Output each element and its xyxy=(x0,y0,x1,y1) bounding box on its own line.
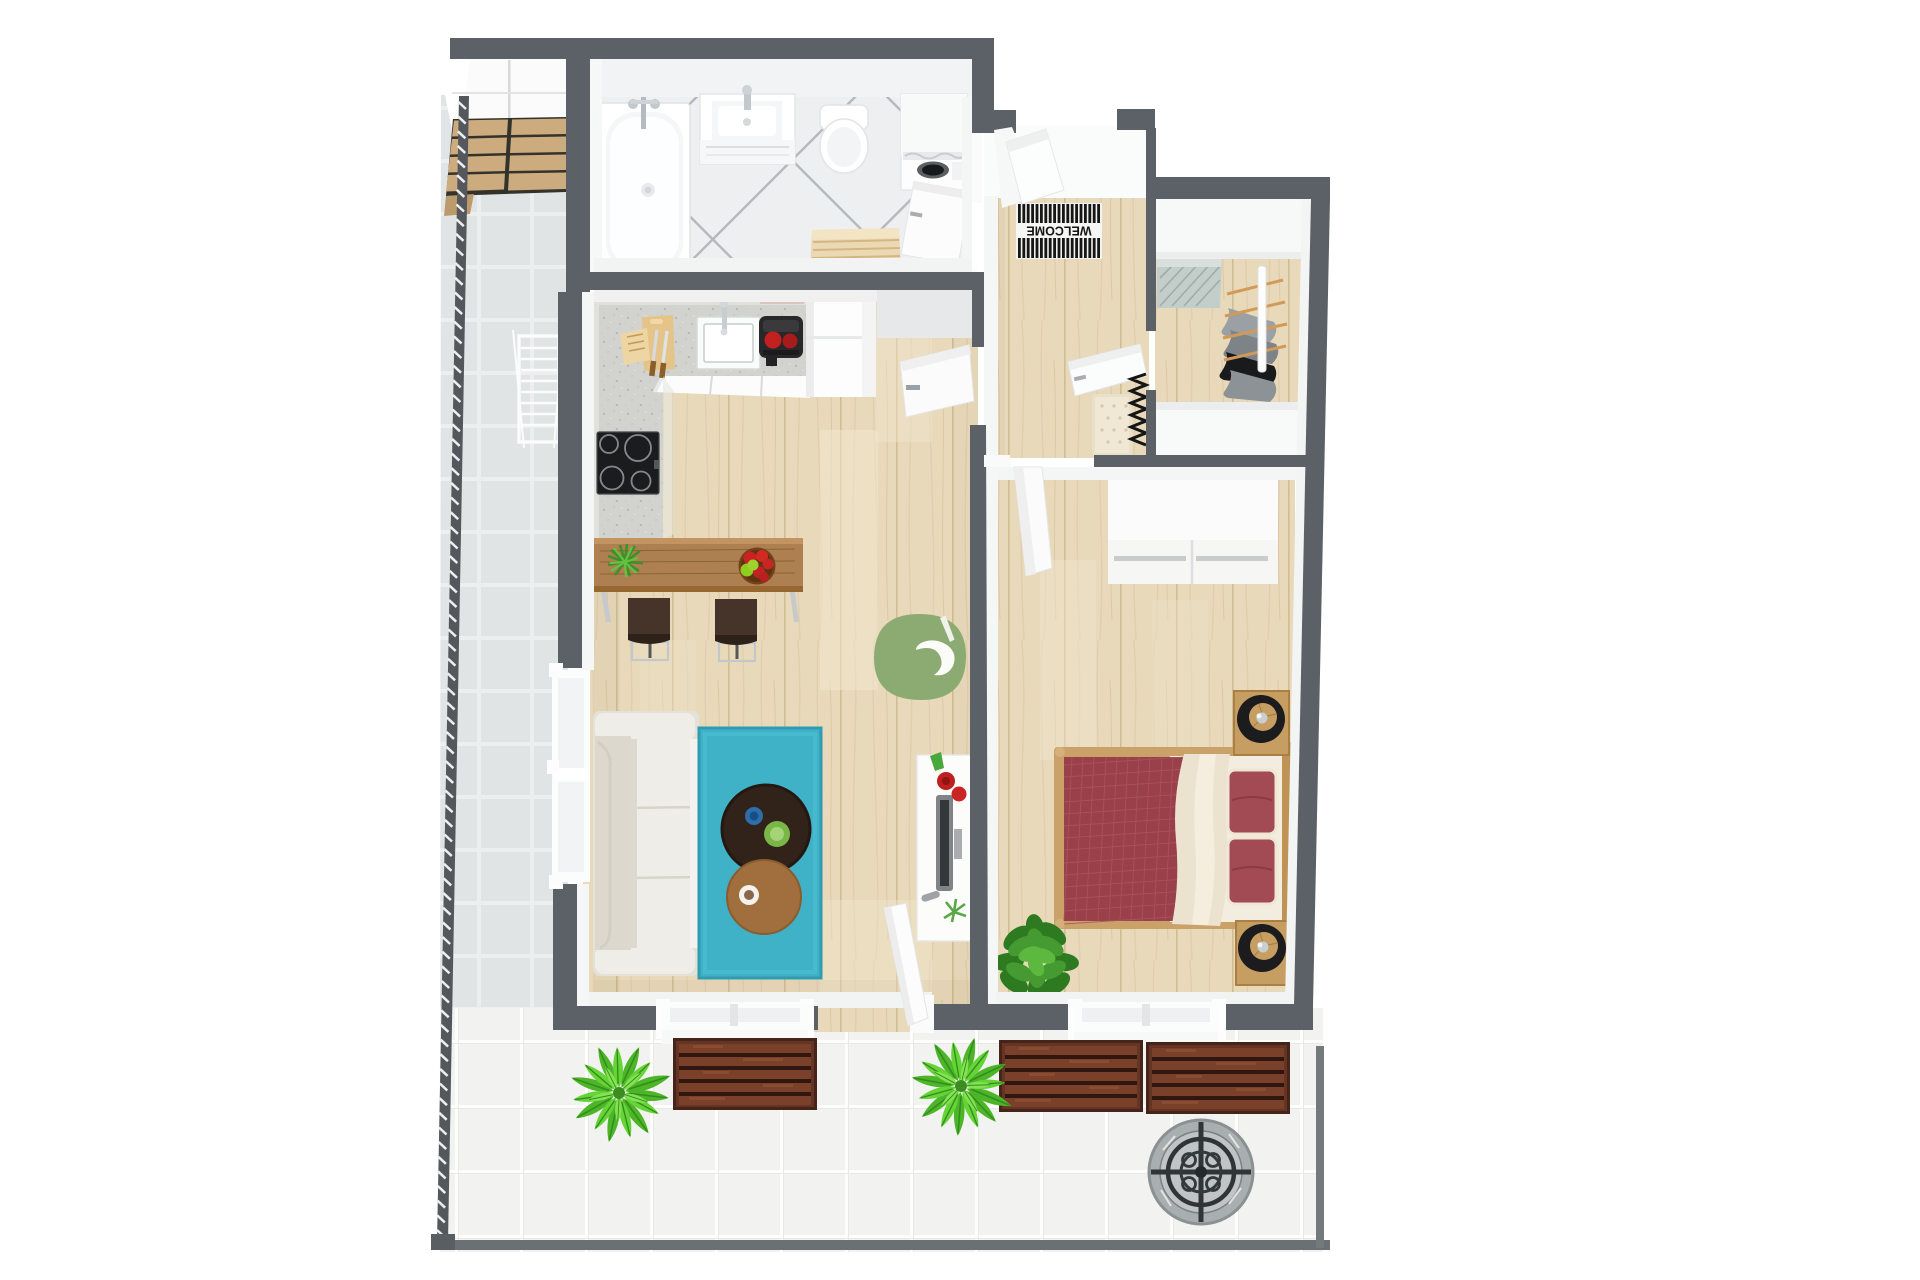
svg-text:WELCOME: WELCOME xyxy=(1026,224,1091,238)
